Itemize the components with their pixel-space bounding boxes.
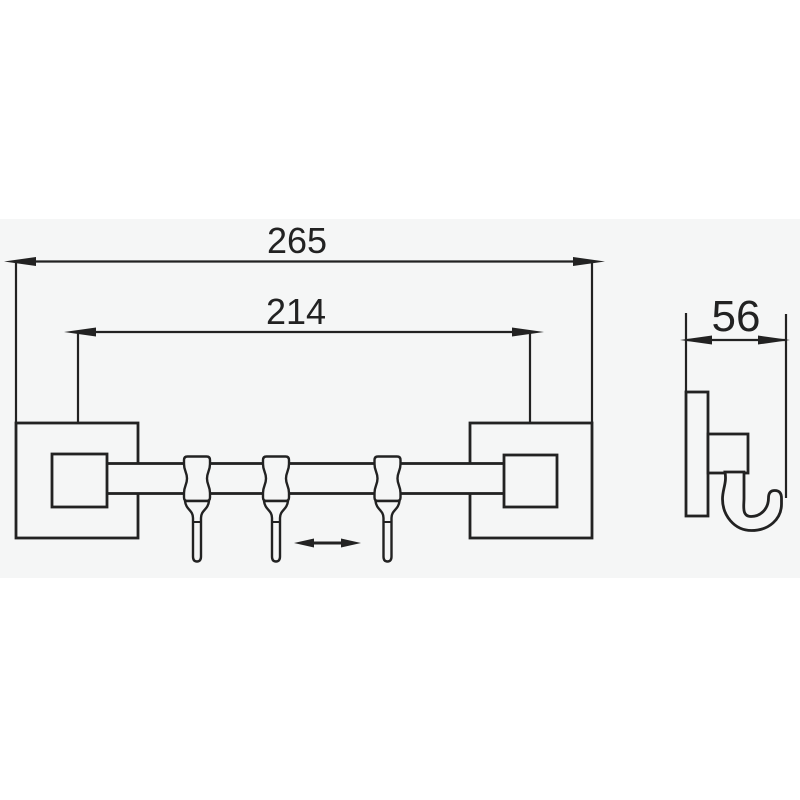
- slider-clamp: [375, 457, 401, 502]
- side-arm: [708, 434, 748, 473]
- rail-bar: [95, 464, 515, 494]
- dimension-label-side-depth: 56: [712, 292, 761, 341]
- mount-boss-left: [52, 454, 107, 507]
- dimension-label-overall-width: 265: [267, 220, 327, 261]
- dimension-label-hole-spacing: 214: [266, 291, 326, 332]
- slider-clamp: [263, 457, 289, 502]
- slider-clamp: [184, 457, 210, 502]
- technical-drawing: 265 214 56: [0, 0, 800, 800]
- mount-boss-right: [504, 455, 557, 507]
- side-wall-plate: [686, 392, 708, 516]
